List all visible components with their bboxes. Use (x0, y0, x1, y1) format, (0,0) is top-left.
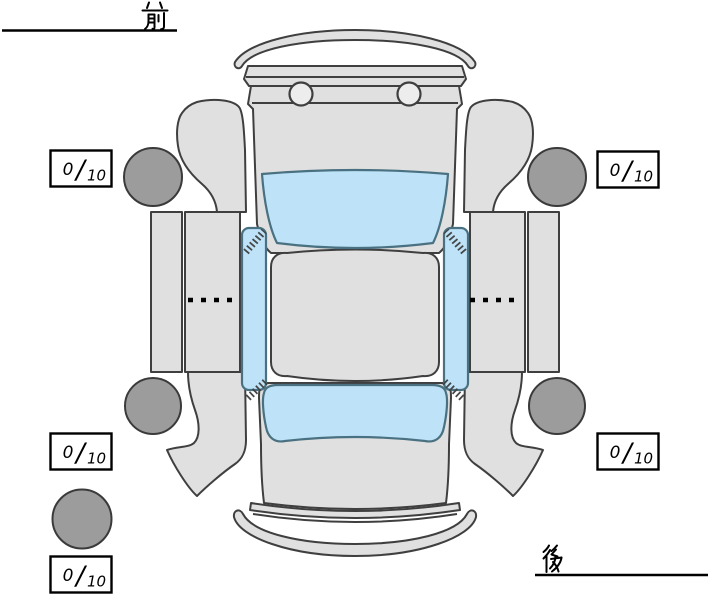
fender-front-left (177, 100, 246, 212)
score-max: 10 (87, 573, 106, 591)
door-panel-right (470, 212, 525, 372)
tire-spare (53, 490, 112, 549)
side-window-right (444, 228, 468, 390)
score-front-right: 0 / 10 (598, 152, 659, 188)
score-rear-left: 0 / 10 (51, 434, 112, 470)
score-value: 0 (63, 566, 74, 586)
headlight-left (290, 83, 313, 106)
tire-front-right (528, 148, 586, 206)
score-max: 10 (634, 168, 653, 186)
tire-rear-right (529, 378, 585, 434)
sill-panel-right (528, 212, 559, 372)
rear-label (544, 546, 562, 573)
fender-rear-left (167, 372, 246, 496)
tire-front-left (124, 148, 182, 206)
score-value: 0 (610, 443, 621, 463)
roof-panel (271, 250, 439, 382)
headlight-right (398, 83, 421, 106)
front-bumper (235, 30, 476, 68)
rear-window (263, 385, 447, 441)
score-spare: 0 / 10 (51, 557, 112, 593)
windshield (262, 170, 448, 248)
score-front-left: 0 / 10 (51, 151, 112, 187)
score-value: 0 (63, 443, 74, 463)
fender-rear-right (464, 372, 543, 496)
door-panel-left (185, 212, 240, 372)
side-window-left (242, 228, 266, 390)
vehicle-condition-diagram: 0 / 10 0 / 10 0 / 10 0 / 10 0 / 10 (0, 0, 711, 600)
score-value: 0 (63, 160, 74, 180)
tire-rear-left (125, 378, 181, 434)
score-value: 0 (610, 161, 621, 181)
score-rear-right: 0 / 10 (598, 434, 659, 470)
front-label (143, 3, 168, 30)
score-max: 10 (634, 450, 653, 468)
fender-front-right (464, 100, 533, 212)
score-max: 10 (87, 167, 106, 185)
score-max: 10 (87, 450, 106, 468)
sill-panel-left (151, 212, 182, 372)
